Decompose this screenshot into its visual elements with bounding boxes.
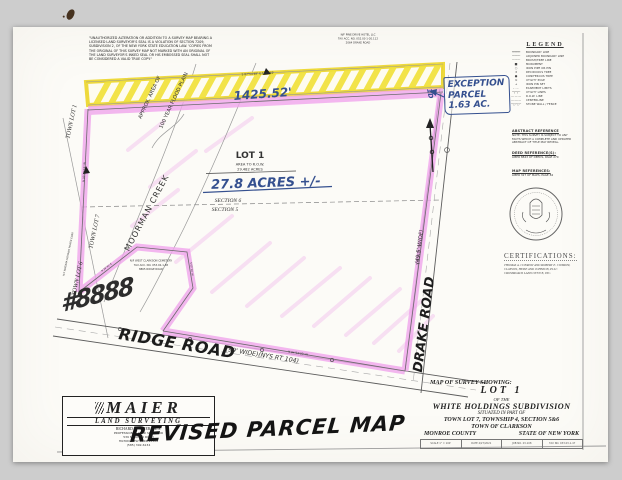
legend-panel: LEGEND ━━━━━ BOUNDARY LINE ───── ADJOINE… xyxy=(506,42,584,106)
exception-tag: 1D xyxy=(425,88,435,100)
surveyor-name-text: MAIER xyxy=(106,399,182,417)
map-reference-block: MAP REFERENCES: LIBER 327 OF MAPS, PAGE … xyxy=(512,169,586,178)
title-block-county-state: MONROE COUNTY STATE OF NEW YORK xyxy=(420,431,583,437)
abstract-reference-lines: NOTE: THIS SURVEY IS SUBJECT TO ANYFACTS… xyxy=(512,134,586,145)
state-seal xyxy=(510,188,562,240)
cemetery-name: N/F WEST CLARKSON CEMETERY xyxy=(130,259,173,263)
lot-area-strike-line xyxy=(206,171,296,174)
town-lot-7-label: TOWN LOT 7 xyxy=(88,213,102,249)
exception-line-1: EXCEPTION xyxy=(447,78,505,91)
west-adjoiner-label: N/F NIAGARA MOHAWK POWER CORP. xyxy=(62,231,74,276)
certifications-lines: THOMAS A. CONROW AND ROBERT E. CONROW,CL… xyxy=(504,263,586,276)
disclaimer-note: "UNAUTHORIZED ALTERATION OR ADDITION TO … xyxy=(89,36,245,61)
legend-title: LEGEND xyxy=(506,42,584,48)
map-reference-value: LIBER 327 OF MAPS, PAGE 84 xyxy=(512,174,586,178)
title-block-stamp-cell: SCALE 1" = 100' xyxy=(421,440,462,448)
lot-title: LOT 1 xyxy=(236,151,265,161)
lot-area-label: AREA TO R.O.W. xyxy=(236,163,265,167)
north-adjoiner-tax: TAX ACC. NO. 052.03-1-20.112 xyxy=(338,37,378,41)
legend-item: ─○─○─ STONE WALL / FENCE xyxy=(506,102,584,106)
title-block-lot: LOT 1 xyxy=(420,386,583,397)
legend-items: ━━━━━ BOUNDARY LINE ───── ADJOINER BOUND… xyxy=(506,51,584,106)
handwritten-exception-note: EXCEPTION PARCEL 1.63 AC. xyxy=(443,75,510,115)
title-block: MAP OF SURVEY SHOWING: LOT 1 OF THE WHIT… xyxy=(420,379,583,449)
north-adjoiner-address: 2064 DRAKE ROAD xyxy=(346,41,371,45)
creek-label: MOORMAN CREEK xyxy=(123,173,171,253)
title-block-stamp-cell: JOB NO. 23-108 xyxy=(502,440,543,448)
certifications-block: CERTIFICATIONS: THOMAS A. CONROW AND ROB… xyxy=(504,243,586,275)
abstract-reference-line: ABSTRACT OF TITLE MAY REVEAL. xyxy=(512,141,586,145)
section-5-label: SECTION 5 xyxy=(212,207,239,213)
title-block-state: STATE OF NEW YORK xyxy=(519,431,579,437)
abstract-reference-block: ABSTRACT REFERENCE NOTE: THIS SURVEY IS … xyxy=(512,129,586,145)
title-block-stamp-cell: DATE 4/27/2021 xyxy=(462,440,503,448)
title-block-stamps: SCALE 1" = 100'DATE 4/27/2021JOB NO. 23-… xyxy=(420,439,583,449)
surveyor-name: MAIER xyxy=(67,399,210,418)
cemetery-tax: TAX ACC. NO. 053.02-1-38 xyxy=(134,263,169,267)
title-block-town: TOWN OF CLARKSON xyxy=(420,424,583,431)
disclaimer-line: BE CONSIDERED A VALID TRUE COPY." xyxy=(89,57,245,61)
deed-reference-block: DEED REFERENCE(S): LIBER 8843 OF DEEDS, … xyxy=(512,151,586,160)
section-6-label: SECTION 6 xyxy=(215,198,242,204)
exception-line-3: 1.63 AC. xyxy=(448,99,506,112)
title-block-county: MONROE COUNTY xyxy=(424,431,476,437)
certification-line: CROSSROADS LAND OFFICE, INC. xyxy=(504,271,586,275)
cemetery-address: 8865 RIDGE ROAD xyxy=(139,267,163,271)
legend-item-label: STONE WALL / FENCE xyxy=(526,102,557,106)
certifications-title: CERTIFICATIONS: xyxy=(504,252,577,261)
title-block-stamp-cell: TAX NO. 033.03-1-47 xyxy=(543,440,583,448)
scanned-survey-map: N/F PINE DRIVE HOTEL LLC TAX ACC. NO. 05… xyxy=(0,0,622,480)
deed-reference-value: LIBER 8843 OF DEEDS, PAGE 270 xyxy=(512,156,586,160)
title-block-subdivision: WHITE HOLDINGS SUBDIVISION xyxy=(420,402,583,411)
north-adjoiner-name: N/F PINE DRIVE HOTEL LLC xyxy=(341,33,376,37)
town-lot-1-label: TOWN LOT 1 xyxy=(65,104,79,139)
lot-area-value: 29.482 ACRES xyxy=(237,167,263,171)
section-line xyxy=(82,200,441,207)
logo-hatch-icon xyxy=(95,402,104,414)
title-block-township: TOWN LOT 7, TOWNSHIP 4, SECTION 5&6 xyxy=(420,417,583,424)
